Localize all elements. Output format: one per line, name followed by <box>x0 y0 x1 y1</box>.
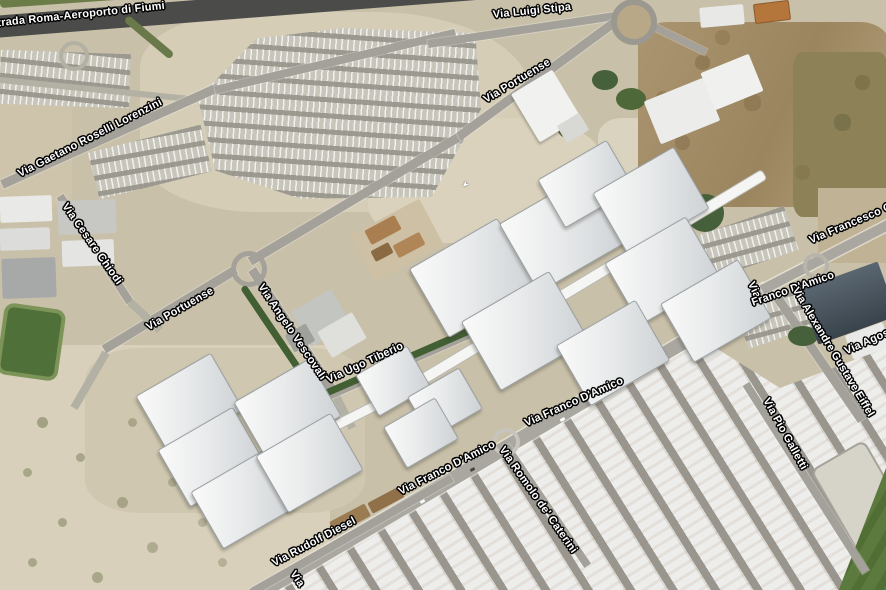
roundabout-portuense <box>231 251 267 287</box>
satellite-map-canvas[interactable]: ➤ ➤ strada Roma-Aeroporto di Fiumi Via L… <box>0 0 886 590</box>
tree-clump <box>616 88 646 110</box>
building-white <box>699 4 745 28</box>
roundabout-highway-ramp <box>59 41 89 71</box>
industrial-building <box>0 195 52 223</box>
roundabout-stipa <box>611 0 657 45</box>
road-label-luigi-stipa: Via Luigi Stipa <box>492 1 571 21</box>
industrial-building <box>0 227 50 251</box>
sports-field <box>0 302 67 382</box>
building-orange-roof <box>753 0 791 24</box>
road-label-portuense-left: Via Portuense <box>144 285 216 333</box>
industrial-building-dark <box>1 257 56 299</box>
tree-clump <box>592 70 618 90</box>
